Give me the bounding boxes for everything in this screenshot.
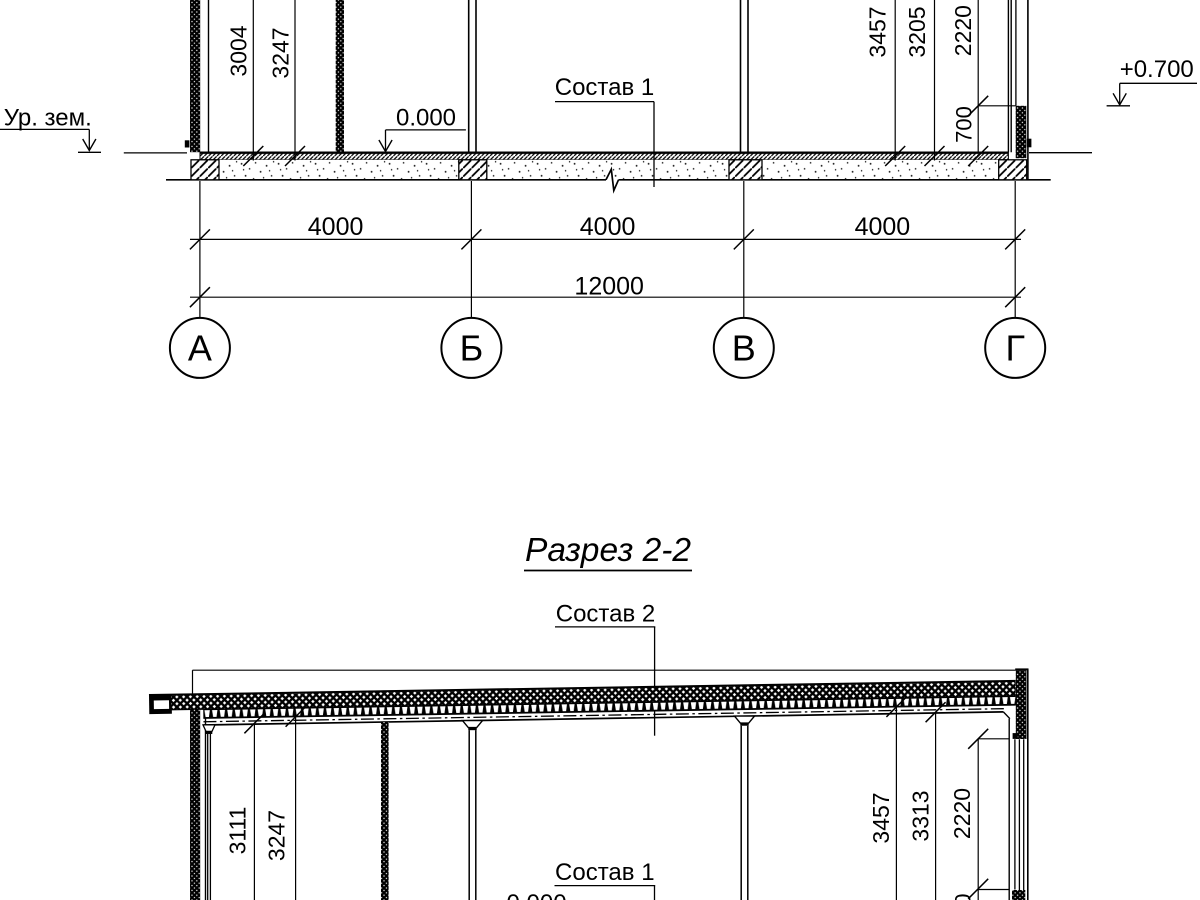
svg-text:4000: 4000: [855, 213, 911, 241]
svg-text:Разрез 2-2: Разрез 2-2: [525, 532, 691, 569]
svg-text:3205: 3205: [904, 6, 930, 57]
svg-text:3313: 3313: [907, 790, 933, 841]
svg-text:3457: 3457: [865, 6, 891, 57]
svg-text:3247: 3247: [268, 27, 294, 78]
svg-text:3111: 3111: [225, 807, 251, 855]
svg-text:Состав 2: Состав 2: [556, 601, 656, 628]
svg-text:4000: 4000: [308, 213, 364, 241]
svg-text:700: 700: [951, 106, 976, 143]
svg-text:Ур. зем.: Ур. зем.: [4, 104, 92, 131]
svg-text:+0.700: +0.700: [1120, 56, 1194, 83]
svg-text:2220: 2220: [949, 788, 975, 839]
svg-text:2220: 2220: [950, 5, 976, 56]
svg-text:Б: Б: [460, 328, 484, 369]
svg-text:3457: 3457: [868, 792, 894, 843]
svg-text:А: А: [188, 328, 212, 369]
svg-text:Состав 1: Состав 1: [555, 859, 655, 886]
svg-text:0.000: 0.000: [507, 890, 567, 900]
svg-text:12000: 12000: [574, 273, 644, 301]
svg-text:4000: 4000: [580, 213, 636, 241]
svg-text:700: 700: [951, 893, 976, 900]
svg-text:3247: 3247: [264, 810, 290, 861]
svg-text:В: В: [732, 328, 756, 369]
svg-text:3004: 3004: [225, 25, 251, 76]
svg-text:Состав 1: Состав 1: [555, 74, 655, 101]
svg-text:0.000: 0.000: [396, 104, 456, 131]
svg-text:Г: Г: [1005, 328, 1025, 369]
